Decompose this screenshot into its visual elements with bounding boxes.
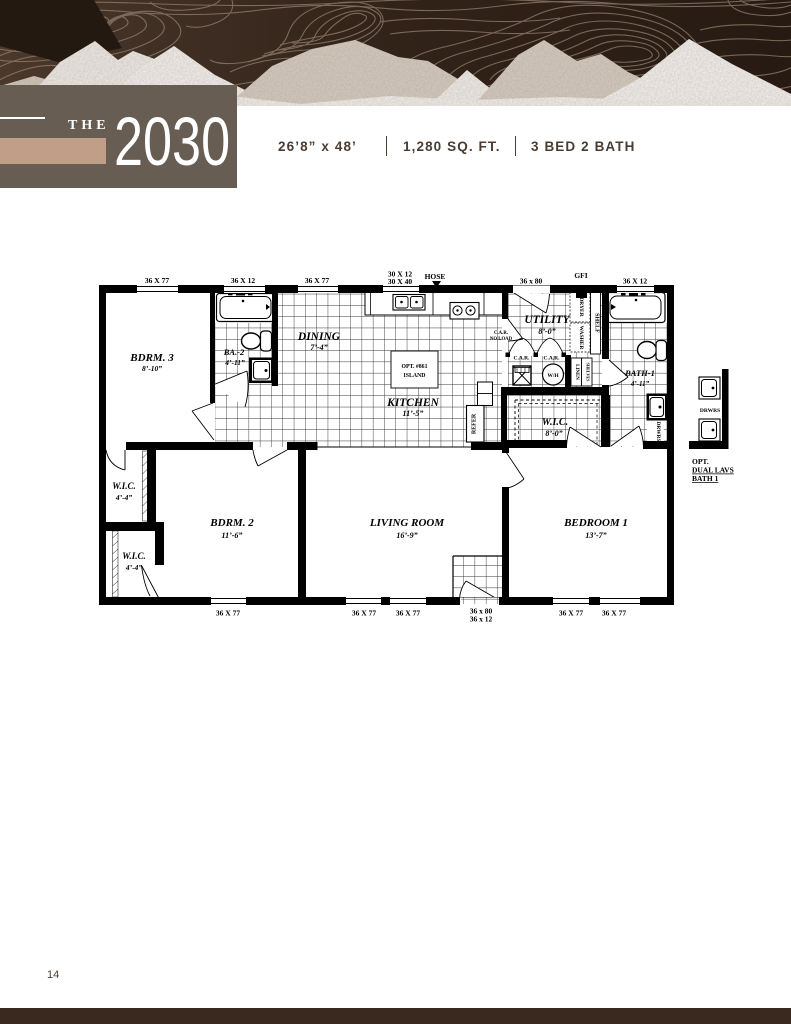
svg-text:4’-11”: 4’-11” xyxy=(224,358,245,367)
svg-text:16’-9”: 16’-9” xyxy=(396,531,417,540)
svg-text:BATH-1: BATH-1 xyxy=(624,368,655,378)
svg-text:LIVING ROOM: LIVING ROOM xyxy=(369,517,445,529)
svg-text:ISLAND: ISLAND xyxy=(404,373,426,379)
svg-text:REFER: REFER xyxy=(472,413,478,434)
svg-text:WASHER: WASHER xyxy=(578,326,584,351)
svg-text:36 x 80: 36 x 80 xyxy=(520,277,543,286)
svg-text:36 X 77: 36 X 77 xyxy=(559,609,583,618)
svg-text:36 x 12: 36 x 12 xyxy=(470,615,493,624)
svg-text:DRYER: DRYER xyxy=(578,297,584,317)
svg-text:36 X 77: 36 X 77 xyxy=(305,276,329,285)
svg-text:13’-7”: 13’-7” xyxy=(585,531,606,540)
svg-text:C.A.R.: C.A.R. xyxy=(513,356,530,362)
svg-text:BATH 1: BATH 1 xyxy=(692,474,719,483)
svg-text:36 X 12: 36 X 12 xyxy=(231,276,255,285)
svg-text:36 X 77: 36 X 77 xyxy=(352,609,376,618)
svg-text:UTILITY: UTILITY xyxy=(524,314,570,326)
svg-text:SHELF: SHELF xyxy=(594,313,600,333)
svg-text:W.I.C.: W.I.C. xyxy=(112,481,136,491)
svg-text:HOSE: HOSE xyxy=(425,272,446,281)
svg-text:DINING: DINING xyxy=(297,331,341,343)
svg-text:GFI: GFI xyxy=(574,271,587,280)
svg-text:BDRM. 2: BDRM. 2 xyxy=(209,517,254,529)
svg-text:W.I.C.: W.I.C. xyxy=(122,551,146,561)
svg-text:36 X 77: 36 X 77 xyxy=(396,609,420,618)
svg-text:C.A.R.: C.A.R. xyxy=(543,356,560,362)
svg-text:7’-4”: 7’-4” xyxy=(310,343,327,352)
svg-text:4’-4”: 4’-4” xyxy=(125,563,142,572)
svg-text:SHELVES: SHELVES xyxy=(586,363,591,383)
svg-text:11’-5”: 11’-5” xyxy=(403,409,424,418)
svg-text:11’-6”: 11’-6” xyxy=(222,531,243,540)
svg-text:W/H: W/H xyxy=(547,373,559,379)
svg-text:DRWRS: DRWRS xyxy=(655,421,661,441)
svg-text:BEDROOM 1: BEDROOM 1 xyxy=(563,517,628,529)
svg-text:36 X 77: 36 X 77 xyxy=(216,609,240,618)
svg-text:8’-10”: 8’-10” xyxy=(142,364,162,373)
svg-text:OPT. #861: OPT. #861 xyxy=(402,364,428,370)
svg-text:36 X 12: 36 X 12 xyxy=(623,277,647,286)
svg-text:NO LOAD: NO LOAD xyxy=(490,337,513,342)
svg-text:BDRM. 3: BDRM. 3 xyxy=(129,352,174,364)
svg-text:8’-0”: 8’-0” xyxy=(545,429,562,438)
svg-text:4’-4”: 4’-4” xyxy=(115,493,132,502)
svg-text:KITCHEN: KITCHEN xyxy=(386,397,439,409)
svg-text:C.A.R.: C.A.R. xyxy=(494,331,508,336)
svg-text:4’-11”: 4’-11” xyxy=(630,380,650,388)
svg-text:36 X 77: 36 X 77 xyxy=(145,276,169,285)
svg-text:W.I.C.: W.I.C. xyxy=(542,417,568,428)
svg-text:DRWRS: DRWRS xyxy=(700,408,720,414)
svg-text:8’-0”: 8’-0” xyxy=(538,327,555,336)
svg-text:LINEN: LINEN xyxy=(574,364,579,380)
svg-text:30 X 40: 30 X 40 xyxy=(388,277,412,286)
svg-text:36 X 77: 36 X 77 xyxy=(602,609,626,618)
svg-text:BA.-2: BA.-2 xyxy=(223,347,245,357)
